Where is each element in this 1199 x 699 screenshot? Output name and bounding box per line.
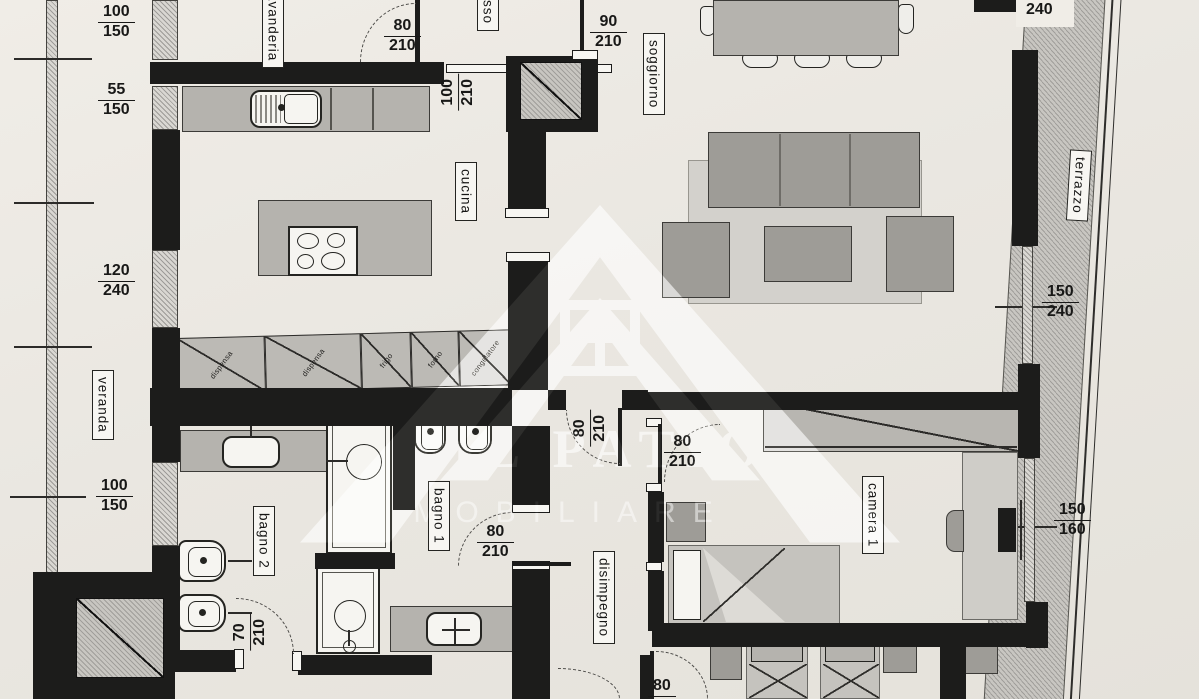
wardrobe-line <box>765 446 1017 448</box>
wall-segment <box>150 388 512 426</box>
room-label-ingresso: ingresso <box>477 0 499 31</box>
wall-segment <box>152 328 180 390</box>
room-label-cucina: cucina <box>455 162 477 221</box>
wall-segment <box>1012 50 1038 246</box>
dim-door: 80 <box>648 678 676 699</box>
shower <box>326 410 392 554</box>
wall-segment <box>298 655 432 675</box>
window <box>152 86 178 130</box>
wall-segment <box>1026 602 1048 648</box>
dim-window: 120 240 <box>98 263 135 300</box>
dim-window: 150 240 <box>1042 284 1079 321</box>
door-sill <box>512 504 550 513</box>
closet-label: forno <box>426 349 444 369</box>
bed-single <box>668 545 840 625</box>
dim-window: 100 150 <box>98 4 135 41</box>
wall-segment <box>508 132 546 210</box>
counter-divider <box>372 88 374 130</box>
counter-divider <box>330 88 332 130</box>
sofa-seam <box>849 134 851 206</box>
room-label-bagno1: bagno 1 <box>428 481 450 551</box>
shaft <box>76 598 164 678</box>
door-sill <box>505 208 549 218</box>
window <box>1022 246 1033 364</box>
room-label-lavanderia: lavanderia <box>262 0 284 68</box>
door-sill <box>292 651 302 671</box>
tv-line <box>1020 500 1022 560</box>
bath2-sink <box>222 436 280 468</box>
window <box>152 462 178 546</box>
toilet <box>178 540 226 582</box>
closet-label: dispensa <box>300 347 327 378</box>
wall-segment <box>508 262 548 390</box>
dim-line <box>10 496 86 498</box>
dim-line <box>14 202 94 204</box>
closet-unit: dispensa <box>265 333 362 391</box>
dim-window: 55 150 <box>98 82 135 119</box>
closet-unit: dispensa <box>177 336 266 394</box>
closet-unit: forno <box>410 331 459 388</box>
room-label-disimpegno: disimpegno <box>593 551 615 644</box>
wall-segment <box>622 390 648 410</box>
dining-table <box>713 0 899 56</box>
sofa <box>708 132 920 208</box>
wall-segment <box>512 426 550 504</box>
dim-door: 80 210 <box>664 434 701 471</box>
wall-segment <box>150 62 444 84</box>
door-leaf <box>513 562 571 566</box>
door-leaf <box>580 0 584 50</box>
dim-window: 100 150 <box>96 478 133 515</box>
room-label-soggiorno: soggiorno <box>643 33 665 115</box>
tv <box>998 508 1016 552</box>
dim-door: 80 210 <box>572 410 609 447</box>
wall-segment <box>315 553 395 569</box>
wall-segment <box>512 570 550 699</box>
dim-line <box>14 346 92 348</box>
wall-segment <box>152 130 180 250</box>
wall-segment <box>152 426 180 462</box>
window <box>1024 458 1035 602</box>
stove <box>288 226 358 276</box>
wall-segment <box>172 650 236 672</box>
wall-segment <box>648 392 1020 410</box>
nightstand <box>666 502 706 542</box>
room-label-bagno2: bagno 2 <box>253 506 275 576</box>
closet-unit: frigo <box>360 332 411 389</box>
dim-line <box>14 58 92 60</box>
dim-window: 150 160 <box>1054 502 1091 539</box>
faucet-mark <box>250 424 252 438</box>
wall-segment <box>548 390 566 410</box>
faucet <box>278 104 285 111</box>
bidet <box>178 594 226 632</box>
dim-door: 80 210 <box>477 524 514 561</box>
veranda-window <box>46 0 58 588</box>
wall-segment <box>940 647 966 699</box>
dining-chair <box>898 4 914 34</box>
bath1-sink <box>426 612 482 646</box>
dim-terrace: 240 <box>1022 2 1057 19</box>
wall-segment <box>393 405 415 510</box>
room-label-camera1: camera 1 <box>862 476 884 554</box>
sink-basin <box>284 94 318 124</box>
sofa-seam <box>779 134 781 206</box>
door-sill <box>646 562 662 571</box>
door-leaf <box>658 424 662 484</box>
closet-label: congelatore <box>469 338 502 378</box>
desk-chair <box>946 510 964 552</box>
fixture-line <box>228 560 252 562</box>
closet-label: dispensa <box>208 349 235 380</box>
closet-unit: congelatore <box>458 329 511 386</box>
floor-plan-scan: dispensa dispensa frigo forno congelator… <box>0 0 1199 699</box>
door-sill <box>572 50 598 60</box>
wall-segment <box>648 571 664 631</box>
armchair <box>662 222 730 298</box>
shaft <box>520 62 582 120</box>
closet-row: dispensa dispensa frigo forno congelator… <box>177 329 512 394</box>
coffee-table <box>764 226 852 282</box>
dim-door: 100 210 <box>440 74 477 111</box>
kitchen-sink <box>250 90 322 128</box>
dim-door: 80 210 <box>384 18 421 55</box>
door-sill <box>506 252 550 262</box>
wall-segment <box>648 492 664 562</box>
room-label-terrazzo: terrazzo <box>1066 149 1092 221</box>
window <box>152 250 178 328</box>
wall-segment <box>974 0 1018 12</box>
drainboard <box>255 95 281 123</box>
room-label-veranda: veranda <box>92 370 114 440</box>
dim-door: 70 210 <box>232 614 269 651</box>
window <box>152 0 178 60</box>
door-arc <box>558 668 620 699</box>
armchair <box>886 216 954 292</box>
shower <box>316 566 380 654</box>
wall-segment <box>652 623 1032 647</box>
dim-door: 90 210 <box>590 14 627 51</box>
closet-label: frigo <box>378 351 395 369</box>
watermark-window-icon <box>560 300 640 376</box>
door-sill <box>646 483 662 492</box>
wall-segment <box>1018 364 1040 458</box>
